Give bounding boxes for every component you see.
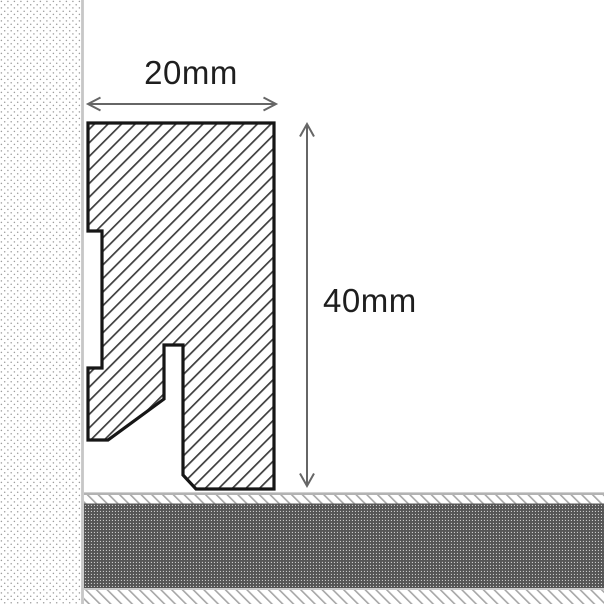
height-dimension: 40mm xyxy=(300,124,417,486)
width-dimension-label: 20mm xyxy=(144,54,238,91)
skirting-profile-cross-section xyxy=(88,123,274,489)
diagram-canvas: 20mm 40mm xyxy=(0,0,604,604)
floor-core-layer xyxy=(84,504,604,589)
floor-top-screed-layer xyxy=(84,495,604,504)
skirting-board-cross-section-diagram: 20mm 40mm xyxy=(0,0,604,604)
floor-bottom-layer xyxy=(84,590,604,604)
height-dimension-label: 40mm xyxy=(323,282,417,319)
wall-surface xyxy=(0,0,81,604)
width-dimension: 20mm xyxy=(88,54,276,111)
floor-section xyxy=(84,494,604,604)
